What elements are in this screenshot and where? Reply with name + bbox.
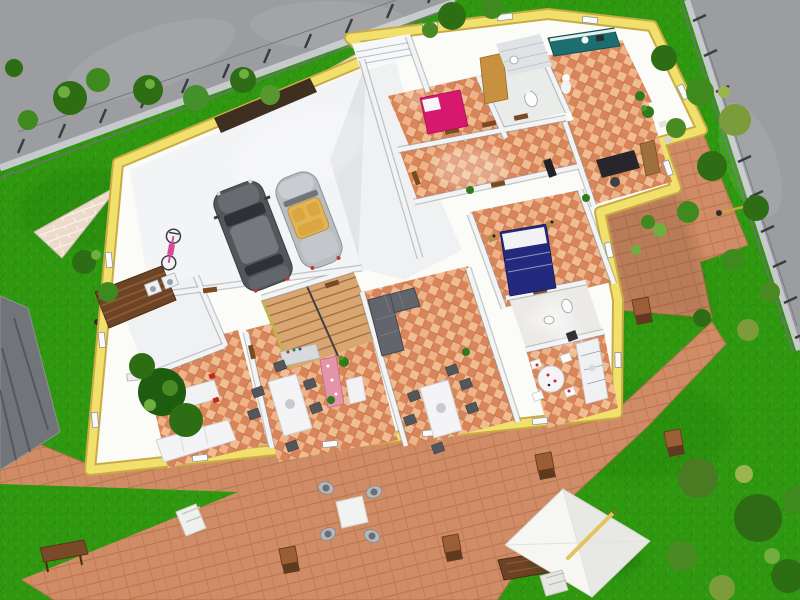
trees-item	[719, 104, 751, 136]
plants-item	[327, 396, 335, 404]
patio-chair-seats-item	[371, 489, 378, 496]
planter	[442, 534, 461, 553]
trees-item	[735, 465, 753, 483]
trees-item	[651, 45, 677, 71]
plants-item	[635, 91, 645, 101]
floorplan-3d-render	[0, 0, 800, 600]
trees-item	[641, 215, 655, 229]
patio-chair-seats-item	[369, 533, 376, 540]
washer-doors-item	[167, 279, 173, 285]
trees-item	[697, 151, 727, 181]
window	[322, 440, 338, 448]
bath-small-sink	[544, 316, 554, 324]
window	[91, 412, 99, 428]
trees-item	[743, 195, 769, 221]
trees-item	[631, 245, 641, 255]
trees-item	[260, 85, 280, 105]
parasol-pole-tip	[612, 510, 616, 514]
window	[98, 332, 106, 348]
plants-item	[339, 356, 344, 361]
dining-table-pedestal	[285, 399, 295, 409]
trees-item	[98, 282, 118, 302]
nightstand-lamps-item	[551, 221, 554, 224]
trees-item	[422, 22, 438, 38]
kitchenette-stove	[596, 34, 605, 41]
plants-item	[462, 348, 470, 356]
washer-doors-item	[150, 286, 156, 292]
kitchenette-sink	[582, 37, 589, 44]
trees-item	[677, 201, 699, 223]
trees-item	[709, 575, 735, 600]
trees-item	[58, 86, 70, 98]
trees-item	[162, 380, 178, 396]
trees-item	[666, 118, 686, 138]
nightstand-lamps-item	[493, 235, 496, 238]
plants-item	[466, 186, 474, 194]
kitchen-chair-seats-item	[568, 390, 571, 393]
trees-item	[144, 399, 156, 411]
trees-item	[667, 541, 697, 571]
bar-items-item	[335, 393, 338, 396]
trees-item	[5, 59, 23, 77]
patio-chair-seats-item	[323, 485, 330, 492]
planter	[279, 546, 298, 565]
table-items-red-item	[547, 374, 550, 377]
window	[582, 16, 598, 24]
trees-item	[438, 2, 466, 30]
toilet-tank	[524, 88, 530, 94]
trees-item	[91, 250, 101, 260]
bar-items-item	[331, 379, 334, 382]
sideboard-bottles-item	[299, 348, 302, 351]
kitchen-chair-seats-item	[536, 364, 539, 367]
kitchen-round-table	[538, 366, 564, 392]
patio-chair-seats-item	[325, 531, 332, 538]
study-chair	[610, 177, 620, 187]
trees-item	[760, 282, 780, 302]
plants-item	[582, 194, 590, 202]
scene-root	[0, 0, 800, 600]
sideboard-bottles-item	[293, 349, 296, 352]
table-items-red-item	[548, 384, 551, 387]
sideboard-bottles-item	[287, 351, 290, 354]
trees-item	[678, 458, 718, 498]
kitchen-sink	[589, 365, 596, 372]
plants-item	[641, 105, 647, 111]
window	[615, 352, 621, 367]
trees-item	[145, 79, 155, 89]
trees-item	[169, 403, 203, 437]
garden-lamp-right-head	[716, 210, 722, 216]
window	[105, 252, 113, 268]
trees-item	[693, 309, 711, 327]
planter	[664, 429, 683, 448]
bar-items-item	[327, 365, 330, 368]
table-items-red-item	[554, 380, 557, 383]
trees-item	[718, 86, 730, 98]
trees-item	[686, 78, 714, 106]
window	[192, 454, 208, 462]
bath-sink	[510, 56, 518, 64]
trees-item	[183, 85, 209, 111]
trees-item	[734, 494, 782, 542]
trees-item	[86, 68, 110, 92]
screenshot-root	[0, 0, 800, 600]
trees-item	[129, 353, 155, 379]
patio-table	[336, 496, 368, 528]
trees-item	[764, 548, 780, 564]
coffee-table	[346, 376, 366, 404]
trees-item	[722, 249, 744, 271]
figure-body	[561, 80, 571, 94]
trees-item	[53, 81, 87, 115]
trees-item	[653, 223, 667, 237]
living-table-pedestal	[436, 403, 446, 413]
window	[532, 417, 548, 425]
trees-item	[18, 110, 38, 130]
planter	[535, 452, 554, 471]
bed-pink	[420, 90, 468, 134]
trees-item	[239, 69, 249, 79]
planter	[632, 297, 651, 316]
trees-item	[737, 319, 759, 341]
